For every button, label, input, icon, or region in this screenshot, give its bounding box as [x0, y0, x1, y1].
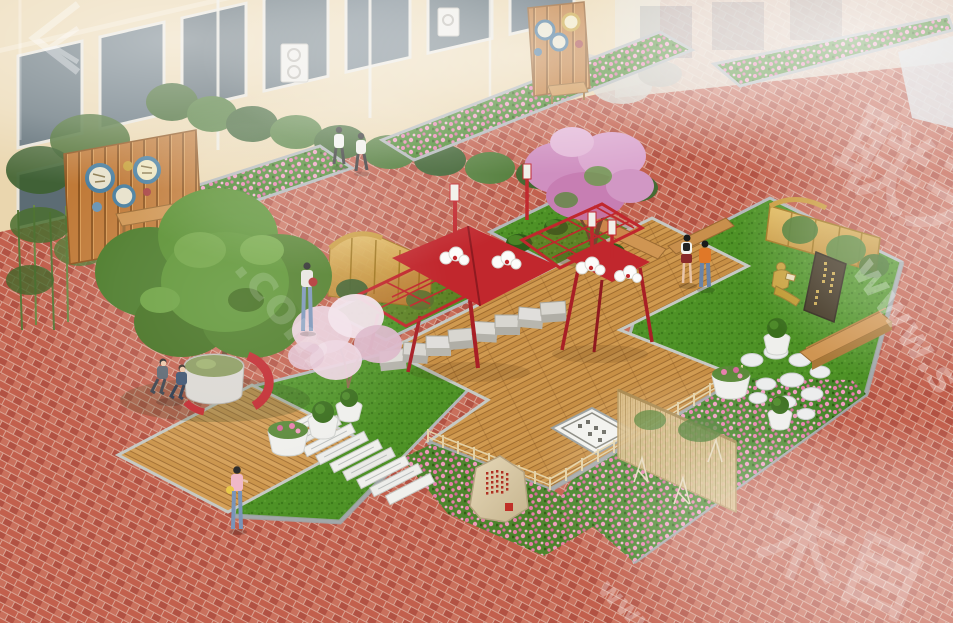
backpack [683, 243, 690, 251]
scene-canvas: .com 联天 www.s 木目 www. [0, 0, 953, 623]
red-seal [505, 503, 513, 511]
landscape-render: .com 联天 www.s 木目 www. [0, 0, 953, 623]
